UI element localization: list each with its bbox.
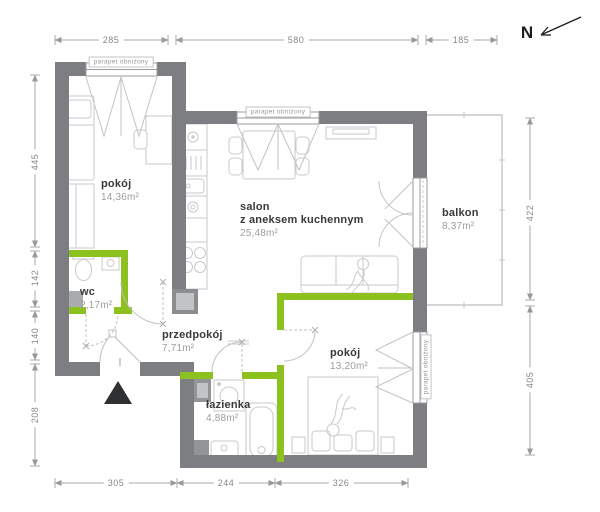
room-area: 2,17m² (80, 299, 112, 312)
dim-top-1: 285 (99, 35, 124, 45)
room-area: 13,20m² (330, 360, 368, 373)
dim-bottom-1: 305 (104, 478, 129, 488)
parapet-label-salon: parapet obniżony (246, 107, 311, 118)
floor-plan: pokój 14,36m² salon z aneksem kuchennym … (0, 0, 600, 512)
room-area: 8,37m² (442, 220, 479, 233)
dim-left-3: 140 (30, 324, 40, 349)
dim-top-3: 185 (449, 35, 474, 45)
bath-sink (211, 441, 238, 457)
room-name: salon (240, 201, 364, 214)
dim-top-2: 580 (284, 35, 309, 45)
room-label-przedpokoj: przedpokój 7,71m² (162, 329, 223, 355)
room-area: 7,71m² (162, 342, 223, 355)
wc-sink (102, 257, 119, 270)
room-name: balkon (442, 207, 479, 220)
room-name: pokój (330, 347, 368, 360)
room-label-lazienka: łazienka 4,88m² (206, 399, 250, 425)
tv-bench (326, 127, 376, 139)
balcony-door (379, 178, 427, 248)
floor-plan-drawing (0, 0, 600, 512)
room-area: 14,36m² (101, 191, 139, 204)
wc-door (83, 314, 118, 349)
entrance-door (100, 330, 140, 366)
room-se-door (284, 327, 318, 361)
north-label: N (521, 23, 533, 43)
dim-right-1: 422 (525, 201, 535, 226)
north-arrow-icon (541, 17, 581, 35)
room-subtitle: z aneksem kuchennym (240, 214, 364, 227)
dim-bottom-2: 244 (214, 478, 239, 488)
parapet-label-nw: parapet obniżony (89, 57, 154, 68)
room-label-wc: wc 2,17m² (80, 286, 112, 312)
dim-left-2: 142 (30, 266, 40, 291)
room-label-pokoj-se: pokój 13,20m² (330, 347, 368, 373)
dining-table (229, 131, 309, 179)
room-label-salon: salon z aneksem kuchennym 25,48m² (240, 201, 364, 240)
room-label-balkon: balkon 8,37m² (442, 207, 479, 233)
room-name: łazienka (206, 399, 250, 412)
dim-left-1: 445 (30, 150, 40, 175)
room-area: 4,88m² (206, 412, 250, 425)
parapet-label-se: parapet obniżony (421, 335, 432, 400)
room-area: 25,48m² (240, 227, 364, 240)
room-label-pokoj-nw: pokój 14,36m² (101, 178, 139, 204)
dim-left-4: 208 (30, 403, 40, 428)
desk-nw (134, 116, 172, 164)
room-name: pokój (101, 178, 139, 191)
room-name: przedpokój (162, 329, 223, 342)
window-se (376, 332, 427, 403)
room-name: wc (80, 286, 112, 299)
dim-right-2: 405 (525, 368, 535, 393)
bathtub (246, 403, 277, 461)
entrance-marker (104, 381, 132, 404)
dim-bottom-3: 326 (329, 478, 354, 488)
